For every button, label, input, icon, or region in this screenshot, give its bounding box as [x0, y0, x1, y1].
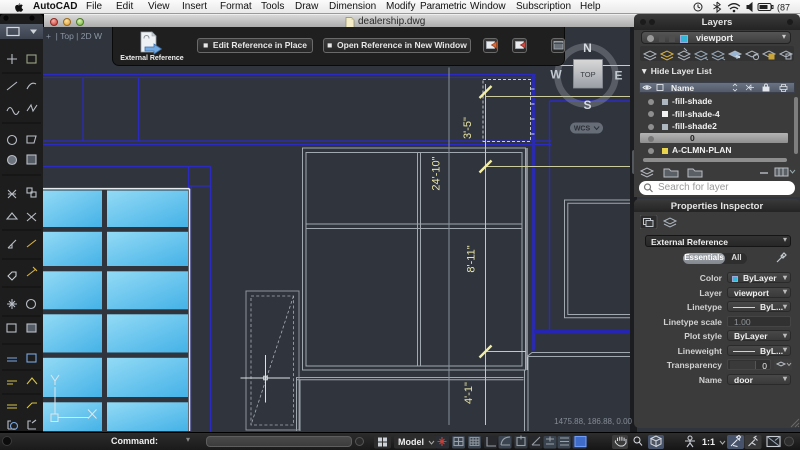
svg-text:Model: Model: [398, 437, 424, 447]
svg-text:4'-1": 4'-1": [463, 382, 475, 404]
svg-text:3'-5": 3'-5": [462, 117, 474, 139]
svg-text:WCS: WCS: [574, 126, 591, 133]
svg-text:S: S: [583, 98, 591, 112]
svg-text:(87: (87: [777, 3, 790, 13]
svg-text:1:1: 1:1: [702, 437, 715, 447]
svg-text:24'-10": 24'-10": [431, 156, 443, 190]
svg-text:TOP: TOP: [580, 70, 595, 79]
svg-text:N: N: [583, 41, 592, 55]
svg-text:8'-11": 8'-11": [466, 245, 478, 272]
svg-text:W: W: [550, 68, 562, 82]
svg-text:E: E: [614, 69, 622, 83]
